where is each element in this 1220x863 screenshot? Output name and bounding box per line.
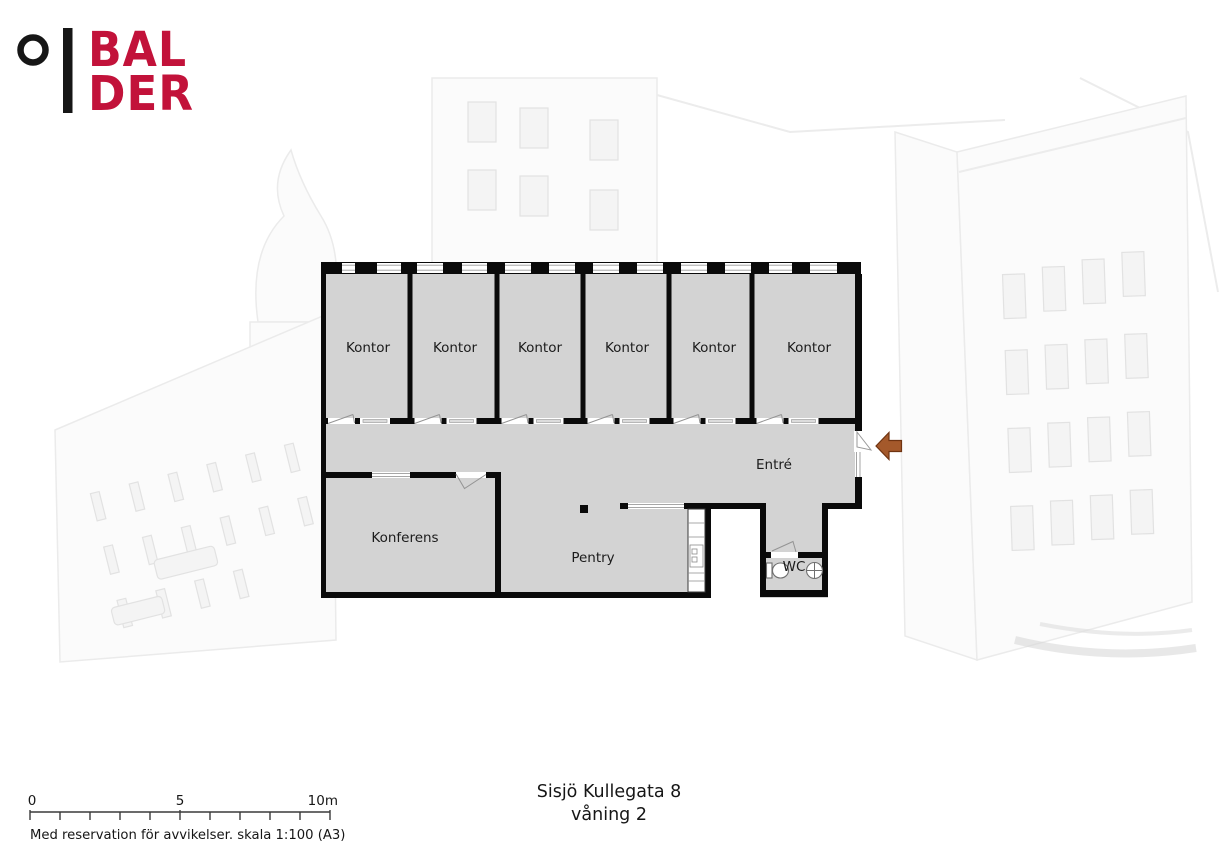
plan-title: Sisjö Kullegata 8 våning 2 <box>537 782 682 825</box>
sketch-roofline <box>657 95 1005 132</box>
floor-subtitle: våning 2 <box>571 804 647 825</box>
right-wall-upper <box>855 274 862 431</box>
scale-bar: 0 5 10m Med reservation för avvikelser. … <box>28 793 346 843</box>
room-kontor-2-label: Kontor <box>433 340 478 356</box>
partition-2 <box>495 274 500 418</box>
kitchen-counter <box>688 509 705 592</box>
room-wc-label: WC <box>783 559 806 575</box>
entry-arrow-icon <box>876 433 902 460</box>
floorplan-canvas: BAL DER <box>0 0 1220 863</box>
logo-text-line2: DER <box>88 66 194 122</box>
sketch-left-facade <box>55 312 336 662</box>
scale-label-5: 5 <box>176 793 185 809</box>
disclaimer-text: Med reservation för avvikelser. skala 1:… <box>30 828 345 843</box>
top-wall-windows <box>321 262 861 274</box>
partition-4 <box>667 274 672 418</box>
partition-1 <box>408 274 413 418</box>
logo-bar-icon <box>63 28 73 113</box>
room-kontor-1-label: Kontor <box>346 340 391 356</box>
room-kontor-6-label: Kontor <box>787 340 832 356</box>
scale-label-10m: 10m <box>308 793 338 809</box>
balder-logo: BAL DER <box>21 22 195 122</box>
address-title: Sisjö Kullegata 8 <box>537 782 682 802</box>
scale-label-0: 0 <box>28 793 37 809</box>
room-entre-label: Entré <box>756 457 792 473</box>
bottom-wall <box>321 592 711 598</box>
sink-icon <box>807 563 823 579</box>
room-kontor-3-label: Kontor <box>518 340 563 356</box>
sketch-right-front <box>957 96 1192 660</box>
sketch-ground-stroke <box>1015 640 1196 653</box>
partition-3 <box>581 274 586 418</box>
room-konferens-label: Konferens <box>371 530 438 546</box>
left-wall <box>321 274 326 598</box>
room-kontor-5-label: Kontor <box>692 340 737 356</box>
room-kontor-4-label: Kontor <box>605 340 650 356</box>
page: BAL DER <box>0 0 1220 863</box>
partition-5 <box>750 274 755 418</box>
column <box>580 505 588 513</box>
entrance-door <box>854 431 871 477</box>
logo-circle-icon <box>21 38 46 63</box>
room-pentry-label: Pentry <box>571 550 614 566</box>
floor-plan: Kontor Kontor Kontor Kontor Kontor Konto… <box>321 262 902 598</box>
